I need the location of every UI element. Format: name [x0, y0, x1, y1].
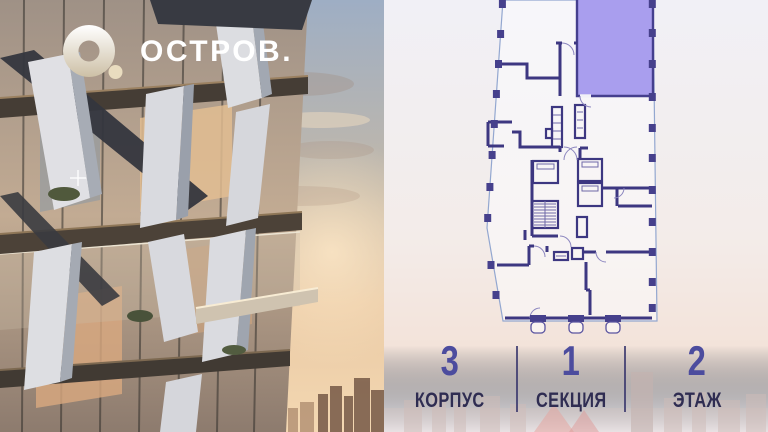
stat-section-label: СЕКЦИЯ	[536, 389, 607, 413]
floor-plan[interactable]	[384, 0, 768, 340]
stat-section-value: 1	[562, 340, 580, 382]
stat-floor-label: ЭТАЖ	[673, 389, 722, 413]
stat-section: 1 СЕКЦИЯ	[518, 338, 624, 424]
floor-plan-panel: 3 КОРПУС 1 СЕКЦИЯ 2 ЭТАЖ	[384, 0, 768, 432]
stat-building: 3 КОРПУС	[384, 338, 516, 424]
unit-stats: 3 КОРПУС 1 СЕКЦИЯ 2 ЭТАЖ	[384, 338, 768, 424]
stat-building-label: КОРПУС	[415, 389, 485, 413]
logo-dot	[109, 65, 123, 79]
apartment-card: ОСТРОВ.	[0, 0, 768, 432]
balconies	[531, 322, 620, 333]
stat-building-value: 3	[441, 340, 459, 382]
brand-logo: ОСТРОВ.	[62, 20, 293, 84]
selected-apartment[interactable]	[577, 0, 653, 96]
stat-divider	[516, 346, 518, 412]
brand-logo-text: ОСТРОВ.	[140, 37, 293, 67]
stat-divider	[624, 346, 626, 412]
building-photo: ОСТРОВ.	[0, 0, 384, 432]
stat-floor-value: 2	[688, 340, 706, 382]
stat-floor: 2 ЭТАЖ	[626, 338, 768, 424]
torus-o-logo-icon	[62, 20, 126, 84]
